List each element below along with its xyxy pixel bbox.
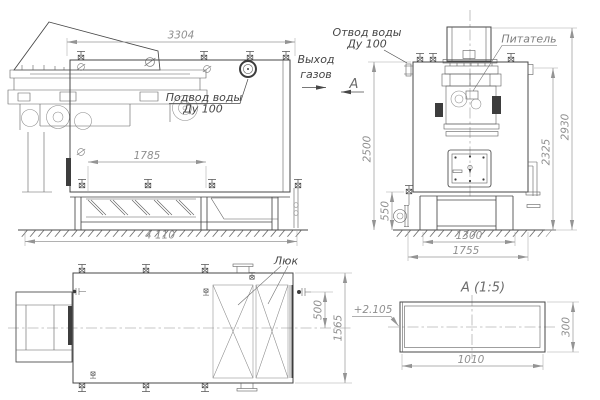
hopper-flange-bolts bbox=[22, 65, 64, 70]
plan-view: Люк 500 1565 bbox=[8, 255, 352, 392]
drawing-canvas: 3304 1785 4 110 Подвод воды Ду 100 Выход… bbox=[0, 0, 600, 400]
dim-grate-length: 1785 bbox=[134, 150, 161, 162]
level-mark: +2.105 bbox=[352, 304, 399, 326]
boiler-technical-drawing: 3304 1785 4 110 Подвод воды Ду 100 Выход… bbox=[0, 0, 600, 400]
side-view: 3304 1785 4 110 Подвод воды Ду 100 Выход… bbox=[8, 22, 364, 246]
water-outlet-text-2: Ду 100 bbox=[346, 38, 387, 51]
top-pipe-stub bbox=[233, 264, 253, 273]
valve-icon bbox=[142, 265, 150, 273]
valve-icon bbox=[416, 54, 424, 62]
valve-icon bbox=[249, 273, 255, 280]
valve-icon bbox=[507, 54, 515, 62]
side-wall-panel bbox=[66, 158, 71, 186]
right-wall-flange bbox=[528, 65, 533, 75]
valve-icon bbox=[78, 180, 86, 188]
water-inlet-text-2: Ду 100 bbox=[182, 103, 223, 116]
support-base bbox=[70, 188, 298, 230]
hatch-covers bbox=[213, 285, 288, 378]
stoker-mechanism bbox=[8, 70, 207, 192]
valve-icon bbox=[200, 52, 208, 60]
hatch-label: Люк bbox=[238, 255, 298, 306]
dim-shell-height: 2500 bbox=[362, 135, 374, 162]
dim-base-width: 1300 bbox=[456, 230, 483, 242]
valve-icon bbox=[142, 383, 150, 391]
hatch-text: Люк bbox=[273, 255, 299, 268]
dim-nozzle-offset: 500 bbox=[313, 300, 325, 320]
valve-icon bbox=[405, 186, 413, 194]
water-inlet-label: Подвод воды Ду 100 bbox=[166, 79, 248, 116]
valve-icon bbox=[429, 54, 437, 62]
ash-pit bbox=[211, 198, 278, 219]
dim-section-height: 300 bbox=[561, 317, 573, 337]
inclined-grate-bars bbox=[88, 200, 194, 215]
dim-base-overall-width: 1755 bbox=[453, 245, 480, 257]
dim-overall-length: 4 110 bbox=[145, 230, 175, 242]
section-view: А (1:5) +2.105 300 1010 bbox=[352, 281, 579, 371]
rear-plate bbox=[292, 285, 294, 378]
dim-section-width: 1010 bbox=[458, 354, 485, 366]
water-inlet-flange bbox=[240, 61, 256, 77]
section-arrow-letter: А bbox=[349, 77, 359, 92]
valve-icon bbox=[203, 289, 209, 295]
center-mark-icon bbox=[203, 66, 211, 73]
valve-icon bbox=[201, 265, 209, 273]
dim-flange-height: 2325 bbox=[541, 138, 553, 165]
rear-downpipe bbox=[294, 188, 298, 228]
valve-icon bbox=[77, 52, 85, 60]
center-mark-icon bbox=[145, 58, 156, 67]
gas-outlet-text-1: Выход bbox=[297, 53, 334, 66]
level-mark-text: +2.105 bbox=[354, 304, 393, 316]
front-view: 2500 550 2325 2930 1300 1755 Отвод воды … bbox=[333, 10, 577, 261]
dim-overall-width: 1565 bbox=[333, 314, 345, 341]
valve-icon bbox=[201, 383, 209, 391]
feeder-drive-mechanism bbox=[435, 63, 501, 136]
valve-icon bbox=[246, 52, 254, 60]
right-nozzle-icon bbox=[297, 288, 311, 296]
valve-icon bbox=[78, 265, 86, 273]
water-outlet-flange bbox=[404, 64, 413, 76]
valve-icon bbox=[282, 52, 290, 60]
center-mark-icon bbox=[77, 64, 85, 71]
dim-overall-height: 2930 bbox=[560, 113, 572, 140]
valve-icon bbox=[208, 180, 216, 188]
feeder-text: Питатель bbox=[501, 33, 556, 46]
section-cut-marker: А bbox=[341, 77, 364, 92]
valve-icon bbox=[90, 372, 96, 378]
gas-outlet-text-2: газов bbox=[300, 68, 332, 81]
valve-icon bbox=[78, 383, 86, 391]
boiler-shell-front bbox=[413, 62, 528, 192]
section-title: А (1:5) bbox=[460, 281, 505, 296]
bottom-pipe-stub bbox=[237, 383, 257, 391]
center-mark-icon bbox=[77, 149, 85, 156]
dim-base-height: 550 bbox=[380, 201, 392, 221]
gas-outlet-label: Выход газов bbox=[297, 53, 334, 88]
feeder-plan bbox=[16, 292, 72, 362]
dim-top-width: 3304 bbox=[168, 30, 195, 42]
fuel-hopper bbox=[14, 22, 160, 70]
water-outlet-label: Отвод воды Ду 100 bbox=[333, 26, 407, 63]
furnace-door bbox=[448, 150, 491, 187]
valve-icon bbox=[294, 180, 302, 188]
left-nozzle-icon bbox=[73, 288, 86, 295]
valve-icon bbox=[144, 180, 152, 188]
